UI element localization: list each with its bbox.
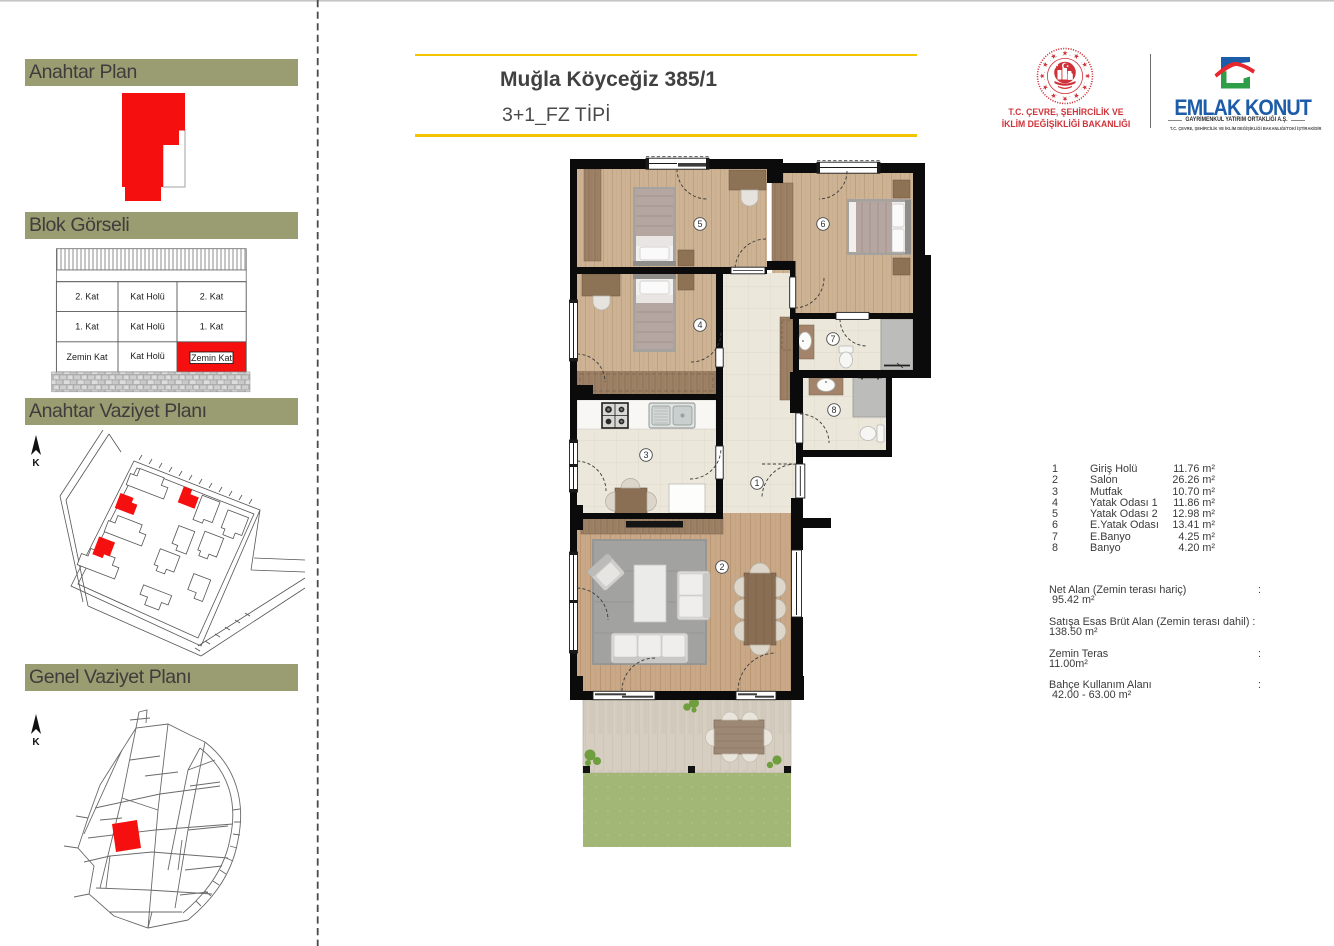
svg-text:6: 6 <box>820 219 825 229</box>
svg-text:2: 2 <box>719 562 724 572</box>
svg-text:8: 8 <box>831 405 836 415</box>
svg-text:4: 4 <box>697 320 702 330</box>
svg-text:3: 3 <box>643 450 648 460</box>
svg-text:K: K <box>32 458 40 469</box>
svg-text:2. Kat: 2. Kat <box>200 292 224 302</box>
svg-text:Kat Holü: Kat Holü <box>130 292 165 302</box>
svg-text:5: 5 <box>697 219 702 229</box>
svg-text:2. Kat: 2. Kat <box>75 292 99 302</box>
svg-text:1. Kat: 1. Kat <box>200 322 224 332</box>
svg-text:1: 1 <box>754 478 759 488</box>
svg-text:Kat Holü: Kat Holü <box>130 351 165 361</box>
svg-text:Kat Holü: Kat Holü <box>130 322 165 332</box>
svg-text:Zemin Kat: Zemin Kat <box>66 352 108 362</box>
svg-text:Zemin Kat: Zemin Kat <box>191 353 233 363</box>
svg-text:1. Kat: 1. Kat <box>75 322 99 332</box>
svg-text:7: 7 <box>830 334 835 344</box>
